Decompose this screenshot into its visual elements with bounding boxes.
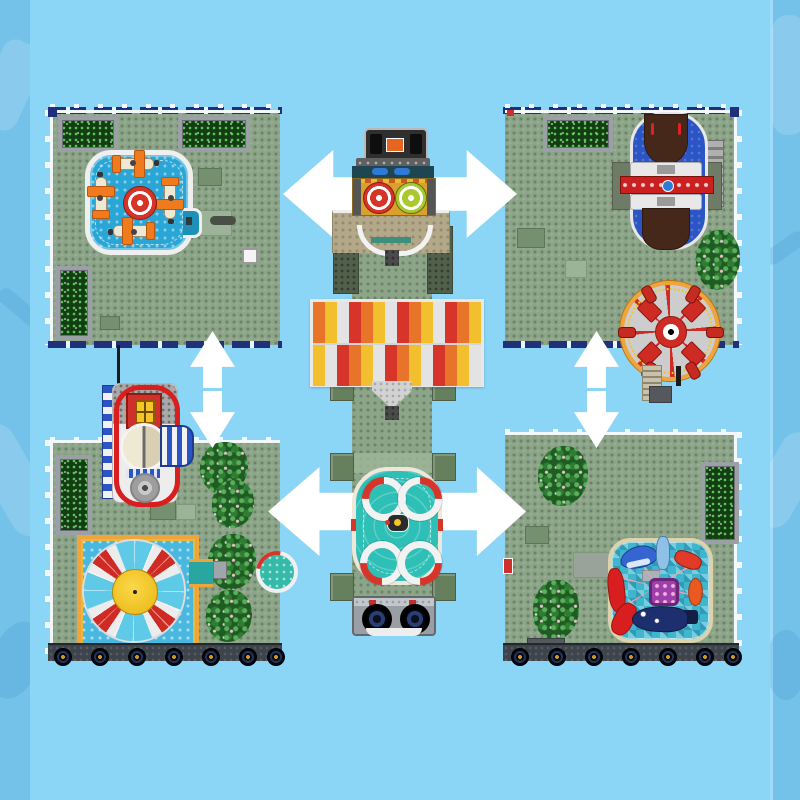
ride-plane-east [158, 177, 184, 221]
mini-pool [256, 551, 298, 593]
right-border-strip [770, 0, 800, 800]
entrance-stud-block [385, 250, 399, 266]
baggage-cart [352, 596, 436, 636]
plate-patch [198, 168, 222, 186]
pool-red-nub [351, 519, 356, 531]
bumper-wheel [622, 648, 640, 666]
left-border-strip [0, 0, 30, 800]
pirate-ship-ride [622, 112, 710, 248]
bumper-wheel [202, 648, 220, 666]
spinner-axle [133, 590, 137, 594]
bumper-wheel [659, 648, 677, 666]
wheel-gondola [706, 327, 724, 338]
bumper-wheel [128, 648, 146, 666]
plane-propeller [97, 172, 103, 177]
entrance-platform [332, 210, 450, 253]
bumper-wheel [239, 648, 257, 666]
module-plate-bottom-left [50, 440, 280, 661]
bumper-wheel [548, 648, 566, 666]
strip-pattern-shape [0, 614, 30, 706]
plate-edge-white-top [50, 110, 280, 113]
platform-steps [657, 165, 675, 174]
product-image-canvas [0, 0, 800, 800]
strip-pattern-shape [770, 426, 800, 535]
ferris-wheel [620, 281, 720, 381]
spinner-center-cap [112, 569, 158, 615]
pool-dock [183, 208, 202, 238]
cart-bottom-trim [366, 628, 422, 636]
fountain-pool [352, 467, 442, 585]
bumper-wheel [267, 648, 285, 666]
walkway-tab [432, 453, 456, 481]
awning-stripe-row-bottom [313, 343, 481, 386]
platform-steps [657, 197, 675, 206]
plane-cockpit [131, 229, 137, 235]
peak-stud-block [385, 406, 399, 420]
plate-edge-ticks-left [45, 440, 50, 661]
plate-edge-ticks-left [45, 110, 50, 345]
bumper-wheel [696, 648, 714, 666]
tower-deck [352, 166, 434, 178]
carousel-pole [117, 345, 120, 385]
bumper-wheel [724, 648, 742, 666]
spinner-center-purple [649, 578, 679, 606]
tower-car-panel [410, 134, 422, 154]
balloon-red [363, 182, 395, 214]
plane-propeller [168, 219, 174, 224]
plate-corner-piece [48, 107, 57, 117]
module-plate-bottom-right [505, 432, 737, 661]
plate-edge-white-left [50, 440, 53, 661]
carousel-ride [102, 383, 186, 501]
boat-rider [394, 519, 401, 526]
wheel-hub [655, 316, 687, 348]
plate-patch [176, 504, 196, 520]
strip-pattern-shape [0, 35, 30, 135]
plane-propeller [154, 160, 159, 166]
pivot-center [662, 180, 674, 192]
bumper-wheel [91, 648, 109, 666]
band-cap [353, 179, 361, 215]
ticket-window [135, 400, 155, 424]
flower-planter [701, 462, 739, 544]
strip-pattern-shape [770, 630, 800, 700]
spinner-dock-step [213, 561, 227, 579]
ship-hull-bottom [642, 208, 690, 250]
flower-planter [543, 116, 613, 152]
wheel-support-brick [649, 386, 672, 403]
ride-plane-west [87, 175, 113, 219]
ship-flag [651, 123, 654, 135]
flower-planter [178, 116, 250, 152]
deck-seat [394, 168, 410, 175]
plate-edge-ticks-top [505, 104, 737, 108]
white-tile [242, 248, 258, 264]
tree-bush [533, 580, 579, 640]
plane-propeller [108, 229, 113, 235]
plate-edge-white-left [50, 110, 53, 345]
disc-spinner-ride [77, 535, 199, 655]
plate-corner-piece [730, 107, 739, 117]
tree-bush [206, 590, 252, 642]
ride-plane-south [111, 219, 155, 245]
plane-cockpit [97, 195, 103, 201]
tower-car-window [386, 138, 404, 152]
wheel-support-pole [676, 366, 681, 386]
carousel-side-awning [160, 425, 194, 467]
striped-awning [310, 299, 484, 387]
whale-figure [631, 605, 688, 634]
pool-boat [387, 514, 409, 532]
plate-edge-white-top [505, 432, 737, 435]
module-plate-top-left [50, 110, 280, 345]
deck-seat [372, 168, 388, 175]
flower-planter [58, 116, 118, 152]
spinner-disc [84, 541, 184, 641]
pipe-element [210, 216, 236, 225]
mini-pool-red-rim [248, 543, 306, 601]
plane-tail [112, 155, 121, 173]
strip-pattern-shape [0, 417, 30, 544]
module-plate-top-right [505, 110, 737, 345]
plate-edge-navy-bottom [48, 341, 282, 348]
walkway-tab [330, 573, 354, 601]
plate-patch [517, 228, 545, 248]
pool-red-nub [438, 519, 443, 531]
band-cap [427, 179, 435, 215]
ship-flag [678, 123, 681, 135]
plane-tail [146, 222, 155, 240]
balloon-green [395, 182, 427, 214]
plate-edge-red-nub [503, 558, 513, 574]
plate-corner-red-nub [507, 110, 514, 116]
plane-cockpit [168, 195, 174, 201]
plane-ride-hub [123, 186, 157, 220]
carousel-turntable [130, 473, 160, 503]
strip-pattern-shape [772, 15, 800, 135]
ride-plane-north [112, 150, 156, 176]
flower-planter [56, 266, 92, 340]
ship-hull-top [644, 114, 688, 164]
bumper-wheel [54, 648, 72, 666]
plane-tail [92, 210, 110, 219]
wheel-gondola [618, 327, 636, 338]
dolphin-figure [656, 536, 670, 570]
plate-patch [565, 260, 587, 278]
bumper-wheel [585, 648, 603, 666]
plate-edge-ticks-top [50, 104, 280, 108]
bumper-wheel [165, 648, 183, 666]
tower-car-panel [370, 134, 382, 154]
sea-spinner-ride [608, 538, 713, 643]
plate-patch [100, 316, 120, 330]
tower-color-band [352, 178, 436, 216]
bumper-wheel [511, 648, 529, 666]
awning-stripe-row-top [313, 302, 481, 343]
plate-edge-ticks-right [737, 110, 742, 345]
strip-pattern-shape [770, 228, 800, 267]
strip-pattern-shape [0, 285, 30, 331]
tree-bush [212, 480, 254, 528]
plane-tail [161, 177, 179, 186]
boat-bow [385, 520, 390, 525]
flower-planter [56, 455, 92, 535]
plate-patch [525, 526, 549, 544]
pivot-beam [620, 176, 714, 194]
plane-cockpit [130, 160, 136, 166]
spinner-dock [189, 559, 213, 587]
entrance-path-teal [371, 237, 411, 243]
tree-bush [538, 446, 588, 506]
pool-ladder [186, 217, 192, 225]
walkway-tab [330, 453, 354, 481]
